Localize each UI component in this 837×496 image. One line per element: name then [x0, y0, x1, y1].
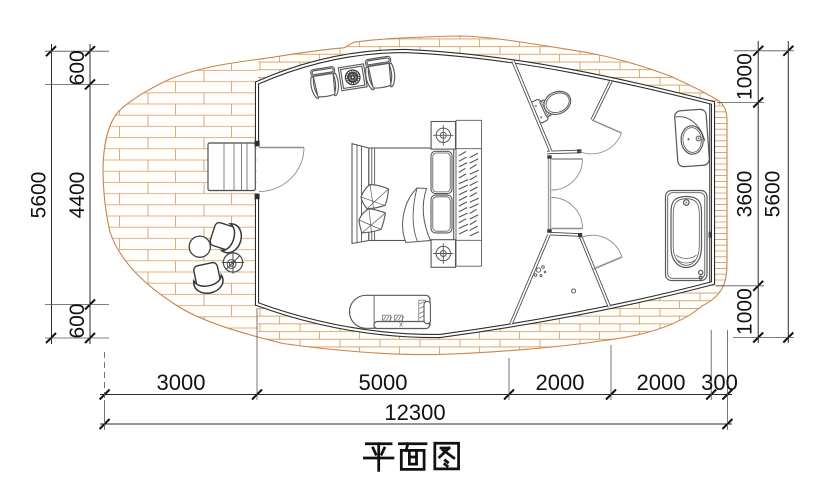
svg-text:1000: 1000 [734, 53, 757, 100]
svg-text:5600: 5600 [28, 172, 51, 219]
svg-text:300: 300 [701, 370, 738, 395]
svg-text:5600: 5600 [762, 171, 785, 218]
svg-text:2000: 2000 [536, 370, 585, 395]
svg-text:600: 600 [66, 50, 89, 85]
svg-text:5000: 5000 [359, 370, 408, 395]
svg-text:3600: 3600 [734, 171, 757, 218]
svg-text:2000: 2000 [637, 370, 686, 395]
svg-text:3000: 3000 [157, 370, 206, 395]
svg-text:4400: 4400 [66, 172, 89, 219]
svg-text:600: 600 [66, 303, 89, 338]
svg-text:12300: 12300 [384, 400, 445, 425]
svg-text:1000: 1000 [734, 288, 757, 335]
